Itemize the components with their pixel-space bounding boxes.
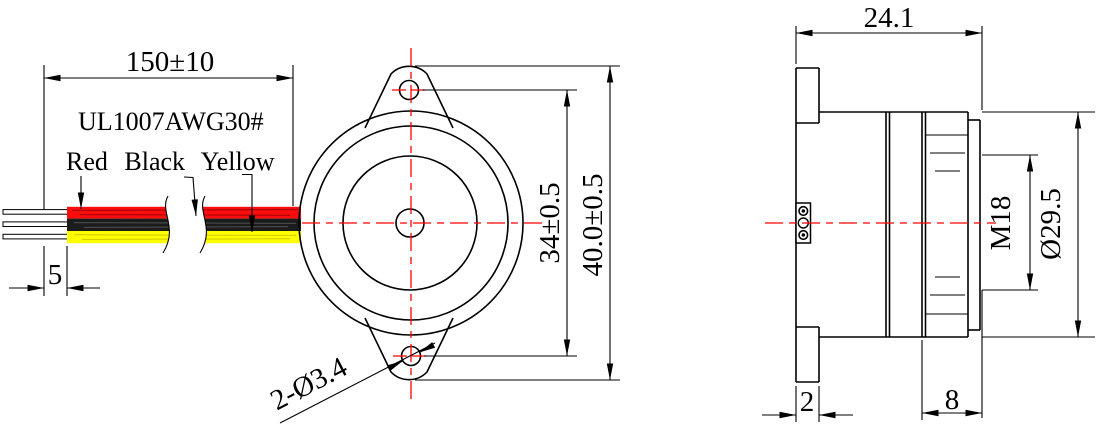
dim-thread: M18 bbox=[982, 155, 1038, 418]
technical-drawing: 150±10 UL1007AWG30# Red Black Yellow 5 3… bbox=[0, 0, 1103, 439]
dim-overall-height-label: 40.0±0.5 bbox=[577, 174, 609, 277]
wire-break-symbol bbox=[163, 196, 206, 253]
dim-depth-label: 24.1 bbox=[864, 2, 915, 34]
dim-flange-thickness: 2 bbox=[762, 386, 853, 422]
dim-depth: 24.1 bbox=[796, 2, 982, 110]
dim-thread-length-label: 8 bbox=[945, 384, 960, 416]
side-view-body bbox=[796, 68, 980, 382]
mounting-tab-top bbox=[365, 66, 453, 128]
wire-spec-label: UL1007AWG30# bbox=[78, 107, 264, 136]
dim-thread-label: M18 bbox=[985, 196, 1017, 251]
dim-hole-spacing-label: 34±0.5 bbox=[534, 182, 566, 263]
drawing-canvas: 150±10 UL1007AWG30# Red Black Yellow 5 3… bbox=[0, 0, 1103, 439]
dim-mounting-holes: 2-Ø3.4 bbox=[265, 343, 435, 423]
mounting-tab-bottom bbox=[365, 318, 453, 380]
wire-bare-ends bbox=[3, 210, 69, 239]
dim-strip-length: 5 bbox=[9, 246, 100, 296]
dim-wire-length-label: 150±10 bbox=[126, 46, 214, 78]
front-centerlines bbox=[302, 48, 542, 402]
dim-mounting-holes-label: 2-Ø3.4 bbox=[265, 351, 352, 417]
thread-marks bbox=[926, 135, 969, 314]
dim-flange-thickness-label: 2 bbox=[800, 386, 815, 418]
dim-strip-length-label: 5 bbox=[48, 259, 63, 291]
wire-color-labels: Red Black Yellow bbox=[66, 147, 275, 176]
dim-body-diameter-label: Ø29.5 bbox=[1035, 188, 1067, 260]
dim-thread-length: 8 bbox=[922, 340, 982, 420]
